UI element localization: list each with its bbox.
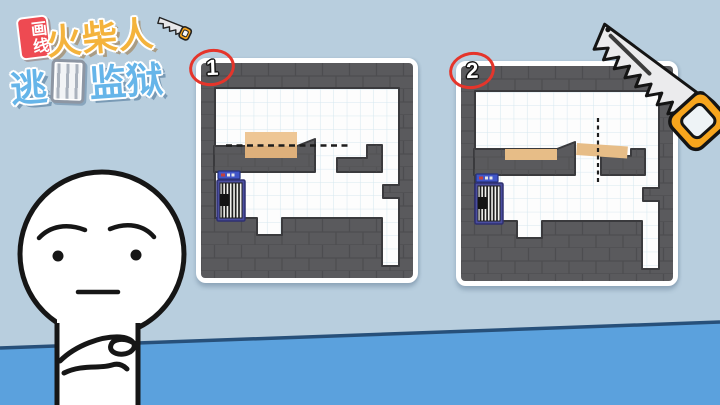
wood-plank-left (505, 149, 557, 160)
wood-crate-bottom (245, 146, 297, 158)
mini-saw-icon (153, 13, 196, 45)
logo-subtitle-prefix: 逃 (8, 57, 49, 113)
right-eye (131, 250, 142, 261)
door-lock (220, 194, 230, 206)
game-walkthrough-screen: 画线 火柴人 逃 监狱 (0, 0, 720, 405)
stickman-character (0, 155, 200, 405)
wood-crate-top (245, 132, 297, 146)
sign-mark (485, 177, 488, 180)
step-number: 1 (205, 56, 218, 78)
stickman-body (57, 319, 138, 405)
sign-mark (490, 177, 493, 180)
left-eye (53, 251, 64, 262)
sign-mark (479, 177, 483, 180)
logo-subtitle-suffix: 监狱 (87, 49, 165, 108)
step-number: 2 (465, 59, 478, 81)
logo-subtitle: 逃 监狱 (8, 49, 164, 114)
sign-mark (227, 174, 230, 177)
door-lock (478, 197, 488, 209)
solution-step-card-1[interactable]: 1 (196, 58, 418, 283)
stickman-head (20, 172, 184, 336)
game-logo: 画线 火柴人 逃 监狱 (6, 4, 206, 112)
sign-mark (221, 174, 225, 177)
sign-mark (232, 174, 235, 177)
jail-cage-icon (50, 59, 86, 104)
level-map-step-1 (201, 63, 413, 278)
